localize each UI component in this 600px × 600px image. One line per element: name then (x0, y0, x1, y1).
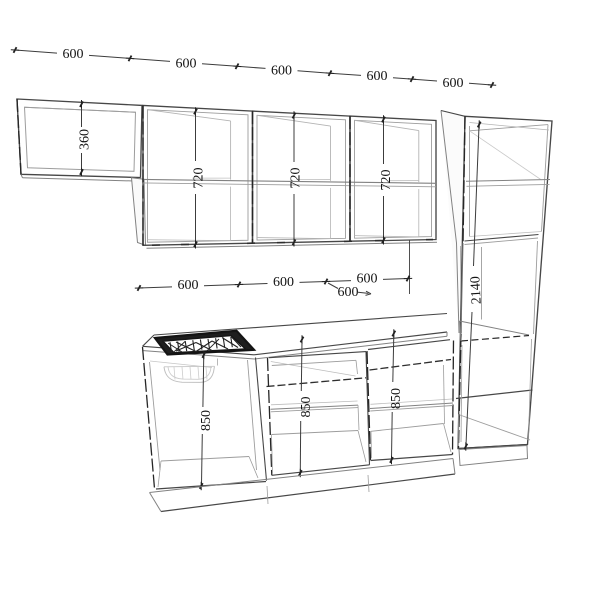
svg-text:600: 600 (367, 69, 388, 84)
svg-text:600: 600 (176, 57, 197, 72)
svg-text:850: 850 (389, 388, 404, 409)
svg-text:600: 600 (271, 64, 292, 79)
svg-text:720: 720 (379, 170, 394, 191)
svg-text:850: 850 (199, 410, 214, 431)
svg-text:2140: 2140 (468, 276, 484, 305)
svg-text:600: 600 (357, 272, 378, 287)
svg-text:600: 600 (273, 275, 294, 290)
svg-text:720: 720 (289, 168, 304, 189)
svg-text:720: 720 (192, 168, 207, 189)
svg-text:600: 600 (178, 278, 199, 293)
svg-text:600: 600 (63, 47, 84, 62)
svg-text:850: 850 (299, 397, 314, 418)
svg-text:600: 600 (338, 285, 359, 300)
svg-text:360: 360 (78, 129, 93, 150)
svg-text:600: 600 (443, 76, 464, 91)
